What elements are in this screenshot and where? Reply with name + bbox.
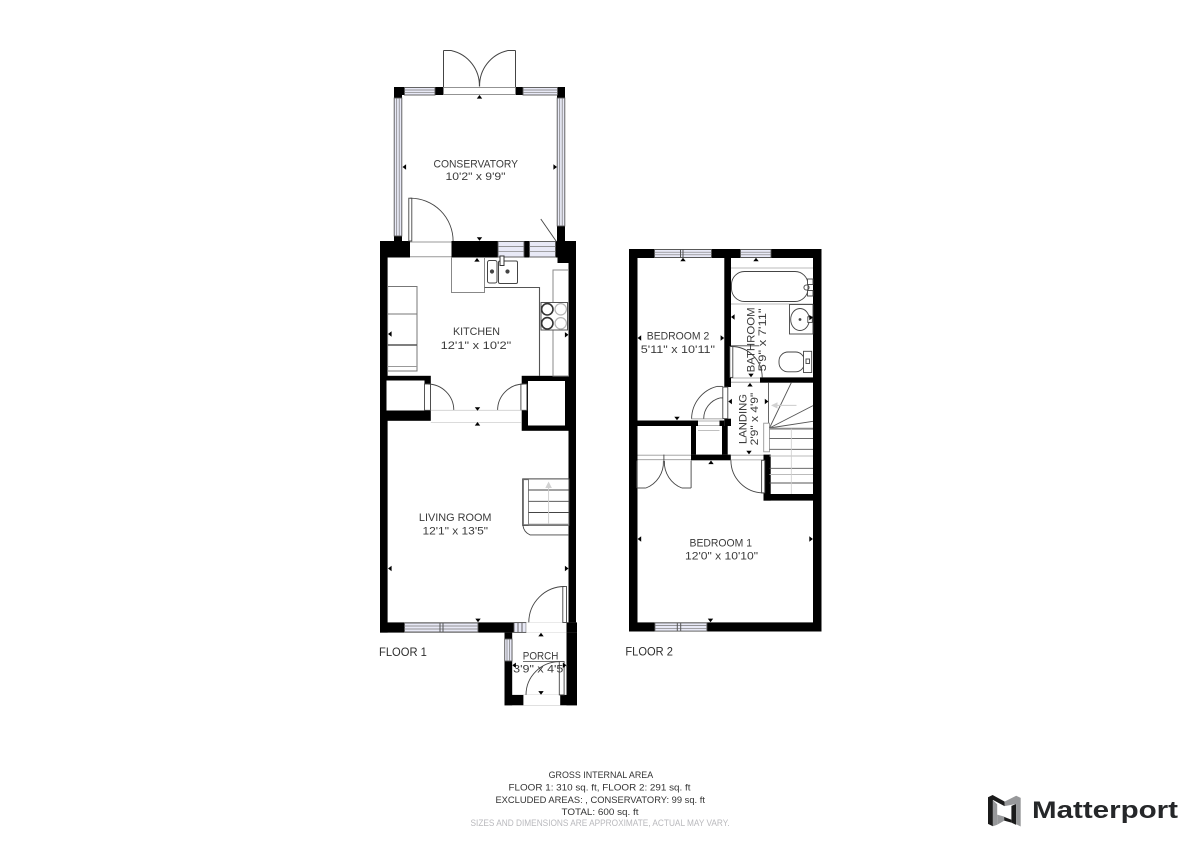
svg-text:PORCH: PORCH bbox=[523, 651, 559, 663]
svg-text:KITCHEN: KITCHEN bbox=[453, 326, 500, 338]
svg-text:EXCLUDED AREAS: , CONSERVATORY: EXCLUDED AREAS: , CONSERVATORY: 99 sq. f… bbox=[495, 795, 705, 806]
svg-text:FLOOR 1: FLOOR 1 bbox=[379, 647, 427, 659]
svg-text:BATHROOM: BATHROOM bbox=[746, 307, 758, 372]
svg-text:BEDROOM 1: BEDROOM 1 bbox=[690, 538, 753, 550]
svg-text:SIZES AND DIMENSIONS ARE APPRO: SIZES AND DIMENSIONS ARE APPROXIMATE, AC… bbox=[471, 818, 730, 829]
svg-text:CONSERVATORY: CONSERVATORY bbox=[434, 159, 519, 171]
svg-text:LANDING: LANDING bbox=[738, 394, 750, 444]
svg-text:GROSS INTERNAL AREA: GROSS INTERNAL AREA bbox=[549, 770, 654, 781]
svg-text:FLOOR 2: FLOOR 2 bbox=[625, 647, 673, 659]
svg-text:LIVING ROOM: LIVING ROOM bbox=[419, 512, 492, 524]
svg-text:Matterport: Matterport bbox=[1032, 797, 1178, 824]
svg-text:2'9" x 4'9": 2'9" x 4'9" bbox=[749, 393, 761, 446]
svg-text:12'1" x 10'2": 12'1" x 10'2" bbox=[441, 340, 512, 352]
svg-text:5'9" x 7'11": 5'9" x 7'11" bbox=[757, 308, 769, 371]
svg-text:FLOOR 1: 310 sq. ft, FLOOR 2:: FLOOR 1: 310 sq. ft, FLOOR 2: 291 sq. ft bbox=[509, 783, 691, 794]
svg-text:10'2" x 9'9": 10'2" x 9'9" bbox=[446, 171, 506, 183]
svg-text:TOTAL: 600 sq. ft: TOTAL: 600 sq. ft bbox=[562, 807, 639, 818]
svg-text:5'11" x 10'11": 5'11" x 10'11" bbox=[641, 344, 715, 356]
svg-text:12'1" x 13'5": 12'1" x 13'5" bbox=[423, 526, 489, 538]
svg-text:BEDROOM 2: BEDROOM 2 bbox=[647, 331, 710, 343]
svg-text:3'9" x 4'5": 3'9" x 4'5" bbox=[513, 664, 568, 676]
svg-text:12'0" x 10'10": 12'0" x 10'10" bbox=[685, 551, 758, 563]
